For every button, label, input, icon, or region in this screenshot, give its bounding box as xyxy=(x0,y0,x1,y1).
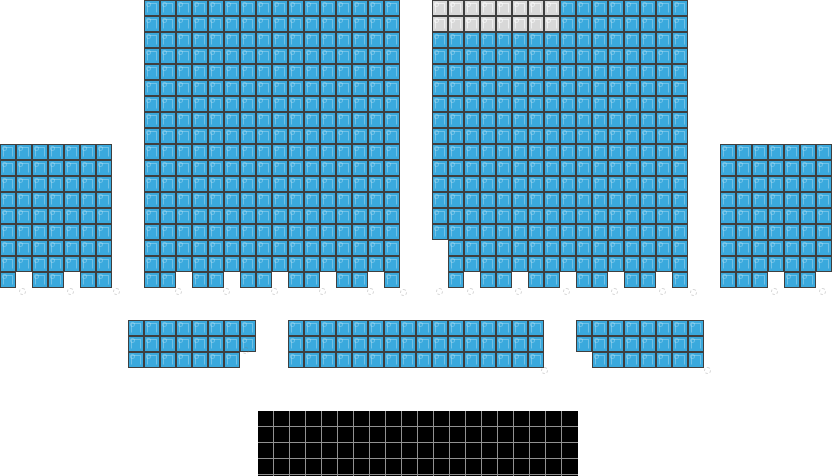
seat[interactable] xyxy=(384,48,400,64)
seat[interactable] xyxy=(576,272,592,288)
seat[interactable] xyxy=(432,96,448,112)
seat[interactable] xyxy=(480,192,496,208)
seat[interactable] xyxy=(240,144,256,160)
seat[interactable] xyxy=(240,240,256,256)
seat[interactable] xyxy=(160,192,176,208)
seat[interactable] xyxy=(256,208,272,224)
seat[interactable] xyxy=(304,208,320,224)
seat[interactable] xyxy=(432,128,448,144)
seat[interactable] xyxy=(480,272,496,288)
seat[interactable] xyxy=(816,208,832,224)
seat[interactable] xyxy=(560,224,576,240)
seat[interactable] xyxy=(624,64,640,80)
seat[interactable] xyxy=(800,208,816,224)
seat[interactable] xyxy=(336,240,352,256)
seat[interactable] xyxy=(768,192,784,208)
seat[interactable] xyxy=(768,224,784,240)
seat[interactable] xyxy=(48,224,64,240)
seat[interactable] xyxy=(640,320,656,336)
seat[interactable] xyxy=(288,48,304,64)
seat[interactable] xyxy=(304,96,320,112)
seat[interactable] xyxy=(32,160,48,176)
seat[interactable] xyxy=(432,320,448,336)
seat[interactable] xyxy=(160,112,176,128)
seat[interactable] xyxy=(96,272,112,288)
seat[interactable] xyxy=(144,64,160,80)
seat[interactable] xyxy=(0,240,16,256)
seat[interactable] xyxy=(448,112,464,128)
seat[interactable] xyxy=(448,48,464,64)
seat[interactable] xyxy=(336,192,352,208)
seat[interactable] xyxy=(144,16,160,32)
seat[interactable] xyxy=(656,352,672,368)
seat[interactable] xyxy=(464,256,480,272)
seat[interactable] xyxy=(64,256,80,272)
seat[interactable] xyxy=(784,160,800,176)
seat[interactable] xyxy=(336,144,352,160)
seat[interactable] xyxy=(512,48,528,64)
seat[interactable] xyxy=(160,208,176,224)
seat[interactable] xyxy=(560,208,576,224)
seat[interactable] xyxy=(464,224,480,240)
seat[interactable] xyxy=(672,320,688,336)
seat[interactable] xyxy=(688,336,704,352)
seat[interactable] xyxy=(656,128,672,144)
seat[interactable] xyxy=(784,256,800,272)
seat[interactable] xyxy=(784,240,800,256)
seat[interactable] xyxy=(736,240,752,256)
seat[interactable] xyxy=(576,144,592,160)
seat[interactable] xyxy=(528,144,544,160)
seat[interactable] xyxy=(176,64,192,80)
seat[interactable] xyxy=(352,336,368,352)
seat[interactable] xyxy=(176,176,192,192)
seat[interactable] xyxy=(208,0,224,16)
seat[interactable] xyxy=(256,0,272,16)
seat[interactable] xyxy=(192,176,208,192)
seat[interactable] xyxy=(624,208,640,224)
seat[interactable] xyxy=(592,112,608,128)
seat[interactable] xyxy=(368,48,384,64)
seat[interactable] xyxy=(544,64,560,80)
seat[interactable] xyxy=(528,256,544,272)
seat[interactable] xyxy=(544,144,560,160)
seat[interactable] xyxy=(608,80,624,96)
seat[interactable] xyxy=(240,176,256,192)
seat[interactable] xyxy=(672,80,688,96)
seat[interactable] xyxy=(736,272,752,288)
seat[interactable] xyxy=(208,336,224,352)
seat[interactable] xyxy=(304,80,320,96)
seat[interactable] xyxy=(480,64,496,80)
seat[interactable] xyxy=(336,128,352,144)
seat[interactable] xyxy=(144,176,160,192)
seat[interactable] xyxy=(544,176,560,192)
seat[interactable] xyxy=(192,112,208,128)
seat[interactable] xyxy=(240,64,256,80)
seat[interactable] xyxy=(464,240,480,256)
seat[interactable] xyxy=(32,144,48,160)
seat[interactable] xyxy=(272,208,288,224)
seat[interactable] xyxy=(448,272,464,288)
seat[interactable] xyxy=(528,352,544,368)
seat[interactable] xyxy=(624,336,640,352)
seat[interactable] xyxy=(656,160,672,176)
seat[interactable] xyxy=(304,64,320,80)
seat[interactable] xyxy=(352,352,368,368)
seat[interactable] xyxy=(624,352,640,368)
seat[interactable] xyxy=(256,160,272,176)
seat[interactable] xyxy=(144,48,160,64)
seat[interactable] xyxy=(368,80,384,96)
seat[interactable] xyxy=(784,272,800,288)
seat[interactable] xyxy=(352,80,368,96)
seat[interactable] xyxy=(528,48,544,64)
seat[interactable] xyxy=(784,144,800,160)
seat[interactable] xyxy=(464,32,480,48)
seat[interactable] xyxy=(384,224,400,240)
seat[interactable] xyxy=(480,144,496,160)
seat[interactable] xyxy=(176,96,192,112)
seat[interactable] xyxy=(80,176,96,192)
seat[interactable] xyxy=(672,112,688,128)
seat[interactable] xyxy=(208,192,224,208)
seat[interactable] xyxy=(816,176,832,192)
seat[interactable] xyxy=(304,32,320,48)
seat[interactable] xyxy=(0,224,16,240)
seat[interactable] xyxy=(352,272,368,288)
seat[interactable] xyxy=(336,96,352,112)
seat[interactable] xyxy=(208,16,224,32)
seat[interactable] xyxy=(560,160,576,176)
seat[interactable] xyxy=(672,224,688,240)
seat[interactable] xyxy=(480,256,496,272)
seat[interactable] xyxy=(576,80,592,96)
seat[interactable] xyxy=(32,224,48,240)
seat[interactable] xyxy=(464,352,480,368)
seat[interactable] xyxy=(128,336,144,352)
seat[interactable] xyxy=(592,48,608,64)
seat[interactable] xyxy=(272,176,288,192)
seat[interactable] xyxy=(368,176,384,192)
seat[interactable] xyxy=(752,144,768,160)
seat[interactable] xyxy=(256,48,272,64)
seat[interactable] xyxy=(192,64,208,80)
seat[interactable] xyxy=(256,144,272,160)
seat[interactable] xyxy=(336,112,352,128)
seat[interactable] xyxy=(208,128,224,144)
seat[interactable] xyxy=(304,128,320,144)
seat[interactable] xyxy=(240,272,256,288)
seat[interactable] xyxy=(240,160,256,176)
seat[interactable] xyxy=(608,240,624,256)
seat[interactable] xyxy=(144,160,160,176)
seat[interactable] xyxy=(816,144,832,160)
seat[interactable] xyxy=(624,16,640,32)
seat[interactable] xyxy=(192,224,208,240)
seat[interactable] xyxy=(656,336,672,352)
seat[interactable] xyxy=(336,64,352,80)
seat[interactable] xyxy=(512,224,528,240)
seat[interactable] xyxy=(256,224,272,240)
seat[interactable] xyxy=(240,224,256,240)
seat[interactable] xyxy=(224,320,240,336)
seat[interactable] xyxy=(80,256,96,272)
seat[interactable] xyxy=(80,208,96,224)
seat[interactable] xyxy=(48,192,64,208)
seat[interactable] xyxy=(592,208,608,224)
seat[interactable] xyxy=(464,208,480,224)
seat[interactable] xyxy=(272,48,288,64)
seat[interactable] xyxy=(336,32,352,48)
seat[interactable] xyxy=(144,272,160,288)
seat[interactable] xyxy=(576,256,592,272)
seat[interactable] xyxy=(672,64,688,80)
seat[interactable] xyxy=(16,224,32,240)
seat[interactable] xyxy=(464,320,480,336)
seat[interactable] xyxy=(512,336,528,352)
seat[interactable] xyxy=(32,176,48,192)
seat[interactable] xyxy=(144,336,160,352)
seat[interactable] xyxy=(640,64,656,80)
seat[interactable] xyxy=(368,256,384,272)
seat[interactable] xyxy=(496,192,512,208)
seat[interactable] xyxy=(752,192,768,208)
seat[interactable] xyxy=(800,272,816,288)
seat[interactable] xyxy=(240,16,256,32)
seat[interactable] xyxy=(272,96,288,112)
seat[interactable] xyxy=(32,192,48,208)
seat[interactable] xyxy=(96,144,112,160)
seat[interactable] xyxy=(16,144,32,160)
seat[interactable] xyxy=(624,48,640,64)
seat[interactable] xyxy=(672,0,688,16)
seat[interactable] xyxy=(496,208,512,224)
seat[interactable] xyxy=(320,192,336,208)
seat[interactable] xyxy=(432,48,448,64)
seat[interactable] xyxy=(208,176,224,192)
seat[interactable] xyxy=(352,224,368,240)
seat[interactable] xyxy=(144,128,160,144)
seat[interactable] xyxy=(480,224,496,240)
seat[interactable] xyxy=(784,224,800,240)
seat[interactable] xyxy=(544,160,560,176)
seat[interactable] xyxy=(192,0,208,16)
seat[interactable] xyxy=(800,256,816,272)
seat[interactable] xyxy=(256,32,272,48)
seat[interactable] xyxy=(272,32,288,48)
seat[interactable] xyxy=(272,0,288,16)
seat[interactable] xyxy=(816,160,832,176)
seat[interactable] xyxy=(32,256,48,272)
seat[interactable] xyxy=(64,160,80,176)
seat[interactable] xyxy=(592,352,608,368)
seat[interactable] xyxy=(576,224,592,240)
seat[interactable] xyxy=(656,320,672,336)
seat[interactable] xyxy=(160,256,176,272)
seat[interactable] xyxy=(656,64,672,80)
seat[interactable] xyxy=(592,176,608,192)
seat[interactable] xyxy=(448,192,464,208)
seat[interactable] xyxy=(752,272,768,288)
seat[interactable] xyxy=(560,48,576,64)
seat[interactable] xyxy=(336,0,352,16)
seat[interactable] xyxy=(80,272,96,288)
seat[interactable] xyxy=(96,176,112,192)
seat[interactable] xyxy=(352,176,368,192)
seat[interactable] xyxy=(384,0,400,16)
seat[interactable] xyxy=(352,160,368,176)
seat[interactable] xyxy=(656,224,672,240)
seat[interactable] xyxy=(592,240,608,256)
seat[interactable] xyxy=(528,224,544,240)
seat[interactable] xyxy=(224,208,240,224)
seat[interactable] xyxy=(720,256,736,272)
seat[interactable] xyxy=(224,256,240,272)
seat[interactable] xyxy=(352,112,368,128)
seat[interactable] xyxy=(80,192,96,208)
seat[interactable] xyxy=(736,256,752,272)
seat[interactable] xyxy=(672,96,688,112)
seat[interactable] xyxy=(576,192,592,208)
seat[interactable] xyxy=(272,160,288,176)
seat[interactable] xyxy=(96,224,112,240)
seat[interactable] xyxy=(672,192,688,208)
seat[interactable] xyxy=(208,48,224,64)
seat[interactable] xyxy=(176,336,192,352)
seat[interactable] xyxy=(160,144,176,160)
seat[interactable] xyxy=(432,80,448,96)
seat[interactable] xyxy=(624,96,640,112)
seat[interactable] xyxy=(608,96,624,112)
seat[interactable] xyxy=(656,48,672,64)
seat[interactable] xyxy=(480,320,496,336)
seat[interactable] xyxy=(496,352,512,368)
seat[interactable] xyxy=(144,0,160,16)
seat[interactable] xyxy=(640,80,656,96)
seat[interactable] xyxy=(160,336,176,352)
seat[interactable] xyxy=(720,224,736,240)
seat[interactable] xyxy=(448,224,464,240)
seat[interactable] xyxy=(608,320,624,336)
seat[interactable] xyxy=(160,64,176,80)
seat[interactable] xyxy=(160,240,176,256)
seat[interactable] xyxy=(144,208,160,224)
seat[interactable] xyxy=(768,160,784,176)
seat[interactable] xyxy=(768,208,784,224)
seat[interactable] xyxy=(640,32,656,48)
seat[interactable] xyxy=(32,240,48,256)
seat[interactable] xyxy=(592,192,608,208)
seat[interactable] xyxy=(80,144,96,160)
seat[interactable] xyxy=(496,144,512,160)
seat[interactable] xyxy=(368,0,384,16)
seat[interactable] xyxy=(640,176,656,192)
seat[interactable] xyxy=(304,320,320,336)
seat[interactable] xyxy=(272,256,288,272)
seat[interactable] xyxy=(480,208,496,224)
seat[interactable] xyxy=(336,272,352,288)
seat[interactable] xyxy=(224,240,240,256)
seat[interactable] xyxy=(672,272,688,288)
seat[interactable] xyxy=(176,0,192,16)
seat[interactable] xyxy=(480,336,496,352)
seat[interactable] xyxy=(544,80,560,96)
seat[interactable] xyxy=(384,32,400,48)
seat[interactable] xyxy=(144,320,160,336)
seat[interactable] xyxy=(0,192,16,208)
seat[interactable] xyxy=(528,336,544,352)
seat[interactable] xyxy=(288,176,304,192)
seat[interactable] xyxy=(416,320,432,336)
seat[interactable] xyxy=(384,240,400,256)
seat[interactable] xyxy=(576,160,592,176)
seat[interactable] xyxy=(464,96,480,112)
seat[interactable] xyxy=(192,352,208,368)
seat[interactable] xyxy=(192,160,208,176)
seat[interactable] xyxy=(224,96,240,112)
seat[interactable] xyxy=(256,192,272,208)
seat[interactable] xyxy=(608,352,624,368)
seat[interactable] xyxy=(256,272,272,288)
seat[interactable] xyxy=(384,336,400,352)
seat[interactable] xyxy=(544,208,560,224)
seat[interactable] xyxy=(512,352,528,368)
seat[interactable] xyxy=(736,176,752,192)
seat[interactable] xyxy=(480,160,496,176)
seat[interactable] xyxy=(560,256,576,272)
seat[interactable] xyxy=(304,192,320,208)
seat[interactable] xyxy=(672,16,688,32)
seat[interactable] xyxy=(160,176,176,192)
seat[interactable] xyxy=(352,96,368,112)
seat[interactable] xyxy=(288,256,304,272)
seat[interactable] xyxy=(624,112,640,128)
seat[interactable] xyxy=(768,144,784,160)
seat[interactable] xyxy=(640,16,656,32)
seat[interactable] xyxy=(496,96,512,112)
seat[interactable] xyxy=(592,336,608,352)
seat[interactable] xyxy=(672,48,688,64)
seat[interactable] xyxy=(592,160,608,176)
seat[interactable] xyxy=(384,96,400,112)
seat[interactable] xyxy=(496,112,512,128)
seat[interactable] xyxy=(592,16,608,32)
seat[interactable] xyxy=(544,192,560,208)
seat[interactable] xyxy=(16,160,32,176)
seat[interactable] xyxy=(608,224,624,240)
seat[interactable] xyxy=(400,336,416,352)
seat[interactable] xyxy=(720,208,736,224)
seat[interactable] xyxy=(96,208,112,224)
seat[interactable] xyxy=(816,240,832,256)
seat[interactable] xyxy=(224,112,240,128)
seat[interactable] xyxy=(368,16,384,32)
seat[interactable] xyxy=(32,208,48,224)
seat[interactable] xyxy=(512,144,528,160)
seat[interactable] xyxy=(160,96,176,112)
seat[interactable] xyxy=(0,256,16,272)
seat[interactable] xyxy=(0,176,16,192)
seat[interactable] xyxy=(192,336,208,352)
seat[interactable] xyxy=(320,208,336,224)
seat[interactable] xyxy=(528,320,544,336)
seat[interactable] xyxy=(320,0,336,16)
seat[interactable] xyxy=(736,224,752,240)
seat[interactable] xyxy=(656,208,672,224)
seat[interactable] xyxy=(448,256,464,272)
seat[interactable] xyxy=(720,160,736,176)
